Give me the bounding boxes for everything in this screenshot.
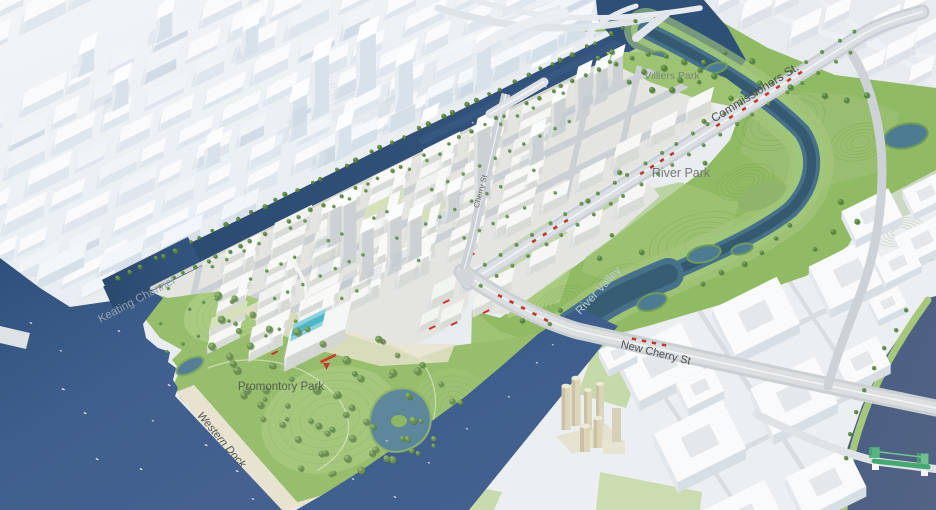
svg-text:Promontory Park: Promontory Park xyxy=(238,381,325,393)
svg-text:River Park: River Park xyxy=(652,166,711,180)
svg-text:Villiers Park: Villiers Park xyxy=(644,70,700,82)
